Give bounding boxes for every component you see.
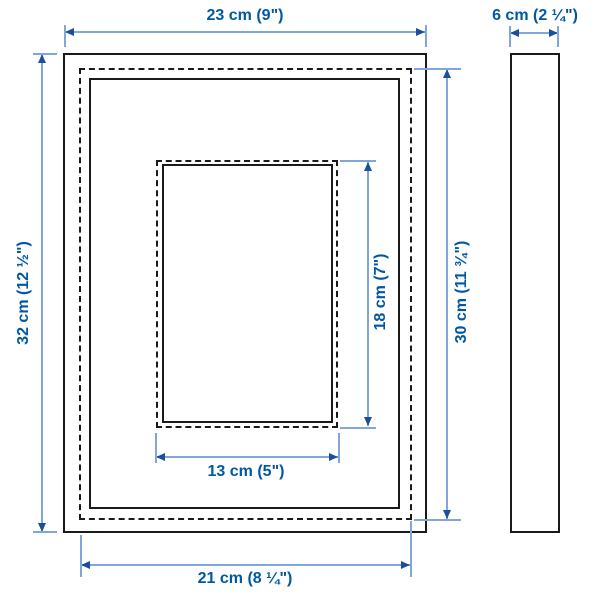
dim-tick <box>340 160 376 162</box>
dim-arrow-down-icon <box>443 510 451 519</box>
dim-line <box>41 54 43 532</box>
dim-label-depth: 6 cm (2 ¼") <box>492 7 578 25</box>
dim-line <box>367 162 369 426</box>
dim-label-back-width: 21 cm (8 ¼") <box>198 570 293 588</box>
dim-label-back-height: 30 cm (11 ¾") <box>453 241 471 344</box>
dim-label-outer-height: 32 cm (12 ½") <box>15 241 33 345</box>
dim-arrow-left-icon <box>81 561 90 569</box>
dim-arrow-left-icon <box>510 29 519 37</box>
dim-tick <box>338 433 340 463</box>
dim-arrow-down-icon <box>364 417 372 426</box>
dim-tick <box>80 535 82 577</box>
dim-tick <box>33 531 57 533</box>
dim-arrow-right-icon <box>416 28 425 36</box>
dim-tick <box>414 519 461 521</box>
dim-label-picture-height: 18 cm (7") <box>372 254 390 331</box>
dim-tick <box>155 433 157 463</box>
dim-tick <box>414 68 461 70</box>
dim-label-outer-width: 23 cm (9") <box>207 7 284 25</box>
dim-line <box>81 564 410 566</box>
dim-tick <box>425 25 427 47</box>
dim-tick <box>509 26 511 47</box>
frame-side-view <box>510 53 560 533</box>
dim-arrow-up-icon <box>38 54 46 63</box>
dim-arrow-right-icon <box>329 453 338 461</box>
dim-arrow-left-icon <box>156 453 165 461</box>
dim-tick <box>410 521 412 577</box>
dim-line <box>446 69 448 519</box>
dim-arrow-left-icon <box>65 28 74 36</box>
photo-opening-edge <box>162 164 333 423</box>
frame-dimension-diagram: 23 cm (9") 6 cm (2 ¼") 32 cm (12 ½") 30 … <box>0 0 600 600</box>
dim-arrow-up-icon <box>443 69 451 78</box>
dim-line <box>65 31 425 33</box>
dim-tick <box>33 53 57 55</box>
dim-arrow-up-icon <box>364 162 372 171</box>
dim-arrow-right-icon <box>401 561 410 569</box>
dim-tick <box>557 26 559 47</box>
dim-label-picture-width: 13 cm (5") <box>208 463 285 481</box>
dim-line <box>156 456 338 458</box>
dim-tick <box>340 427 376 429</box>
dim-tick <box>64 25 66 47</box>
